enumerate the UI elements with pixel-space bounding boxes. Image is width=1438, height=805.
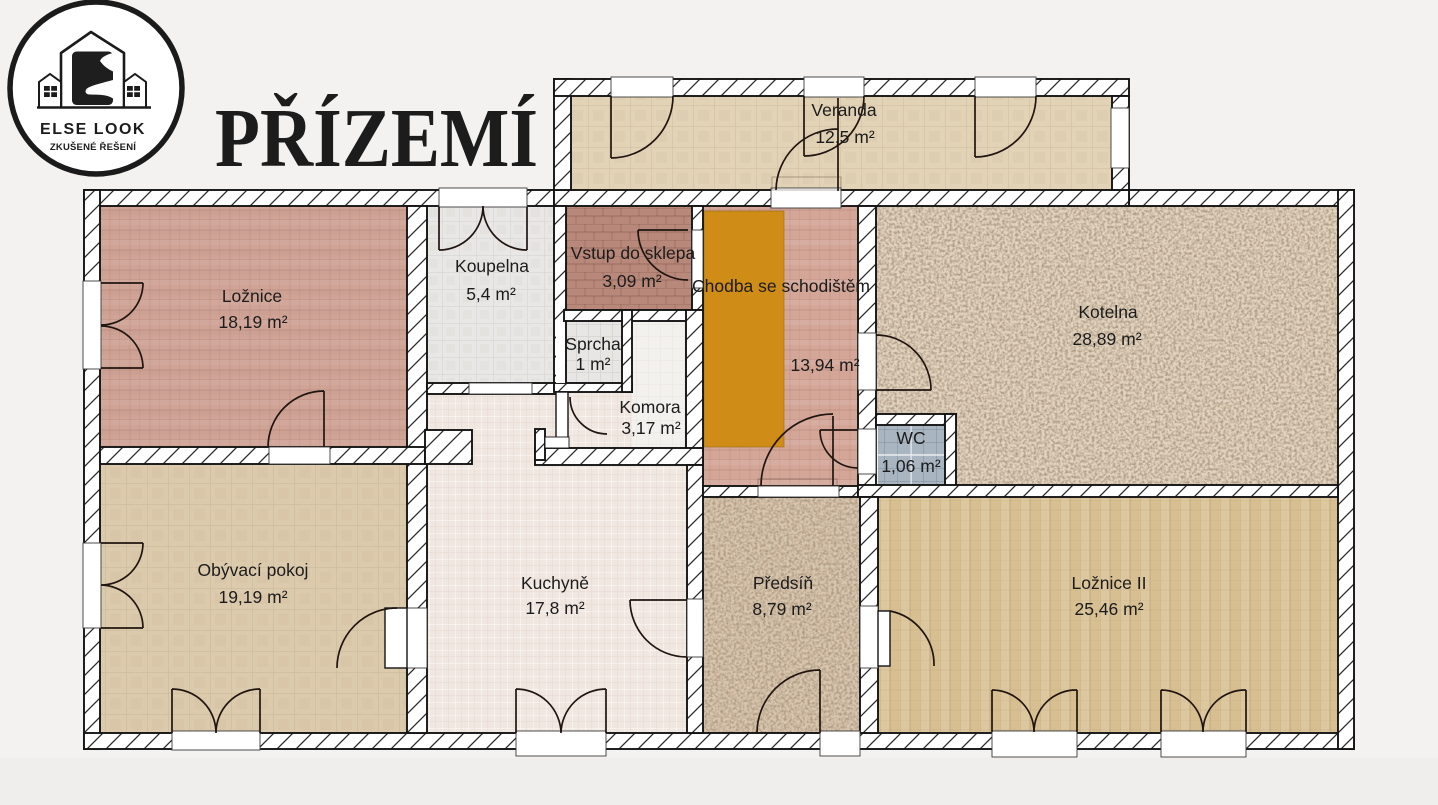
svg-text:Kotelna: Kotelna bbox=[1078, 302, 1138, 322]
svg-text:Ložnice: Ložnice bbox=[222, 286, 282, 306]
svg-text:25,46 m²: 25,46 m² bbox=[1074, 599, 1143, 619]
svg-text:3,09 m²: 3,09 m² bbox=[602, 271, 661, 291]
svg-text:PŘÍZEMÍ: PŘÍZEMÍ bbox=[215, 92, 538, 185]
svg-text:1 m²: 1 m² bbox=[576, 354, 611, 374]
svg-text:ZKUŠENÉ ŘEŠENÍ: ZKUŠENÉ ŘEŠENÍ bbox=[50, 141, 136, 153]
svg-text:Ložnice II: Ložnice II bbox=[1072, 573, 1147, 593]
svg-text:13,94 m²: 13,94 m² bbox=[790, 355, 859, 375]
svg-text:Koupelna: Koupelna bbox=[455, 256, 529, 276]
svg-text:Obývací pokoj: Obývací pokoj bbox=[198, 560, 309, 580]
svg-text:Komora: Komora bbox=[619, 397, 681, 417]
svg-text:Veranda: Veranda bbox=[811, 100, 876, 120]
svg-text:Předsíň: Předsíň bbox=[753, 573, 813, 593]
svg-text:Kuchyně: Kuchyně bbox=[521, 573, 589, 593]
svg-text:Sprcha: Sprcha bbox=[565, 334, 621, 354]
svg-text:18,19 m²: 18,19 m² bbox=[218, 312, 287, 332]
svg-text:19,19 m²: 19,19 m² bbox=[218, 587, 287, 607]
svg-text:Chodba se schodištěm: Chodba se schodištěm bbox=[692, 276, 870, 296]
svg-text:ELSE LOOK: ELSE LOOK bbox=[40, 121, 146, 138]
svg-text:3,17 m²: 3,17 m² bbox=[621, 418, 680, 438]
svg-text:5,4 m²: 5,4 m² bbox=[466, 284, 516, 304]
svg-text:Vstup do sklepa: Vstup do sklepa bbox=[571, 243, 696, 263]
svg-text:12,5 m²: 12,5 m² bbox=[815, 127, 874, 147]
svg-text:17,8 m²: 17,8 m² bbox=[525, 598, 584, 618]
svg-text:1,06 m²: 1,06 m² bbox=[881, 456, 940, 476]
svg-text:28,89 m²: 28,89 m² bbox=[1072, 329, 1141, 349]
svg-text:8,79 m²: 8,79 m² bbox=[752, 599, 811, 619]
svg-text:WC: WC bbox=[896, 428, 925, 448]
